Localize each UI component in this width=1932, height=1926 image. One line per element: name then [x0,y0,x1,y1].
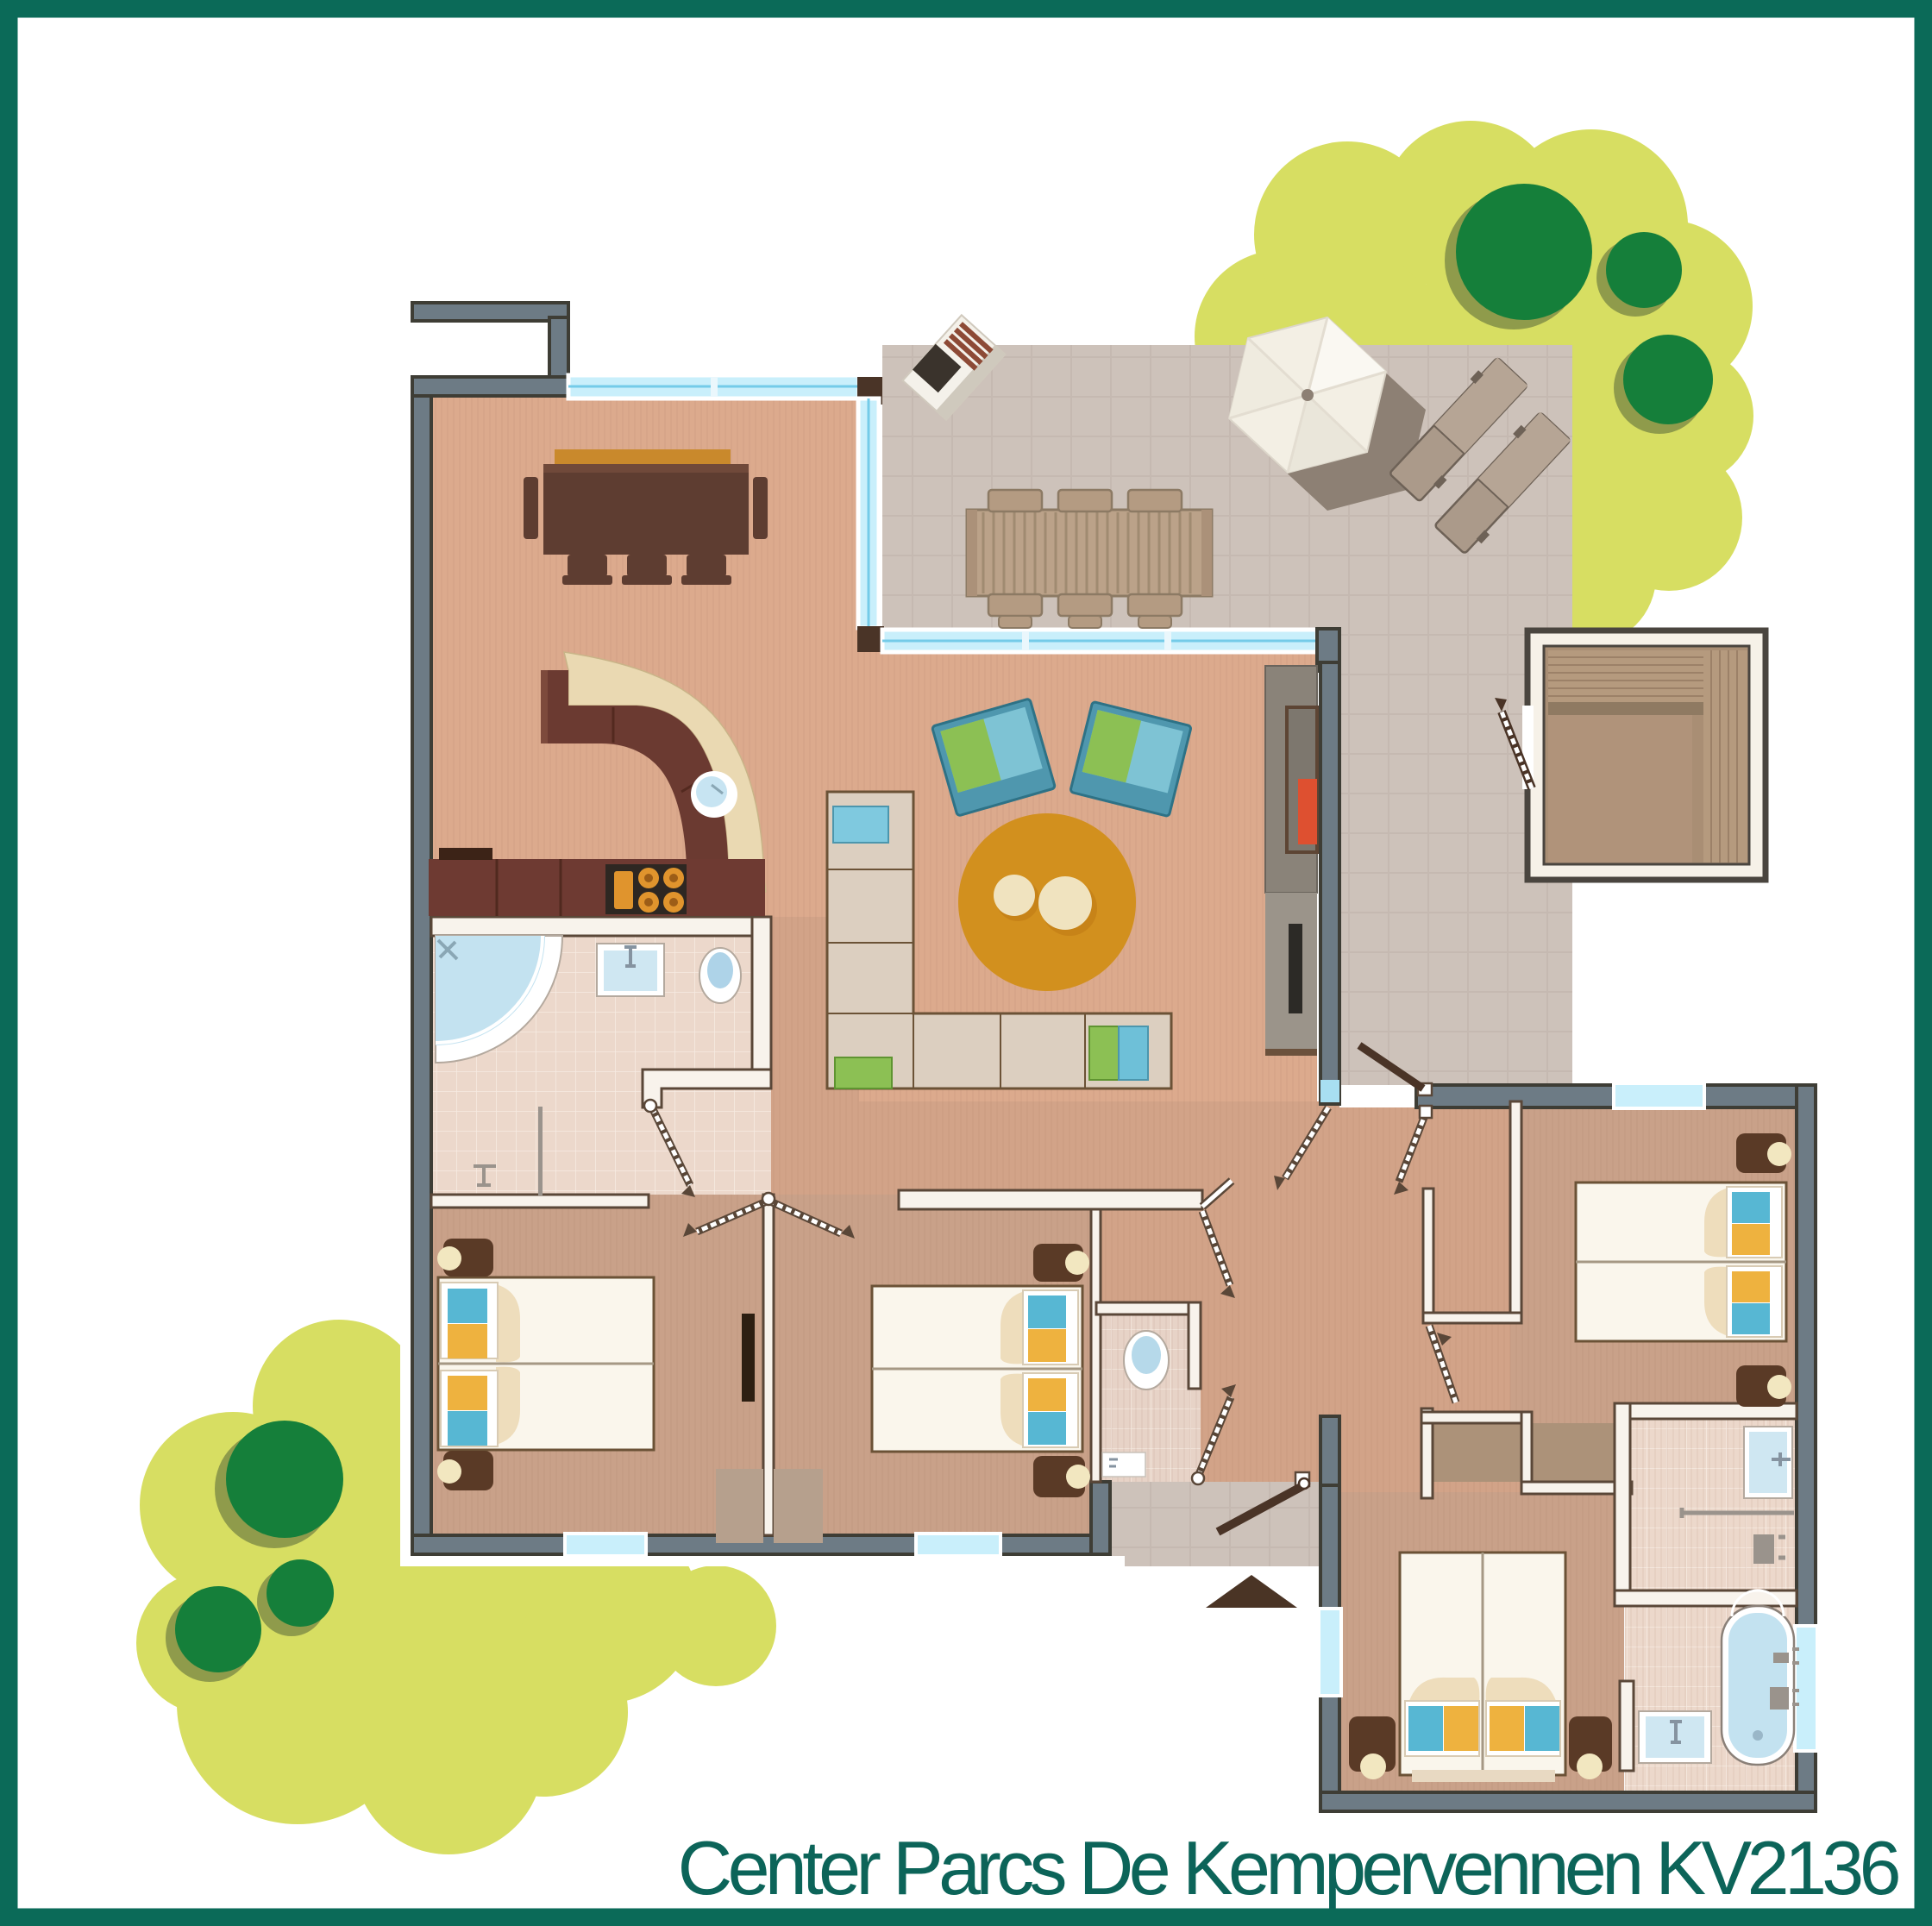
svg-text:Center Parcs De Kempervennen K: Center Parcs De Kempervennen KV2136 [678,1825,1899,1910]
